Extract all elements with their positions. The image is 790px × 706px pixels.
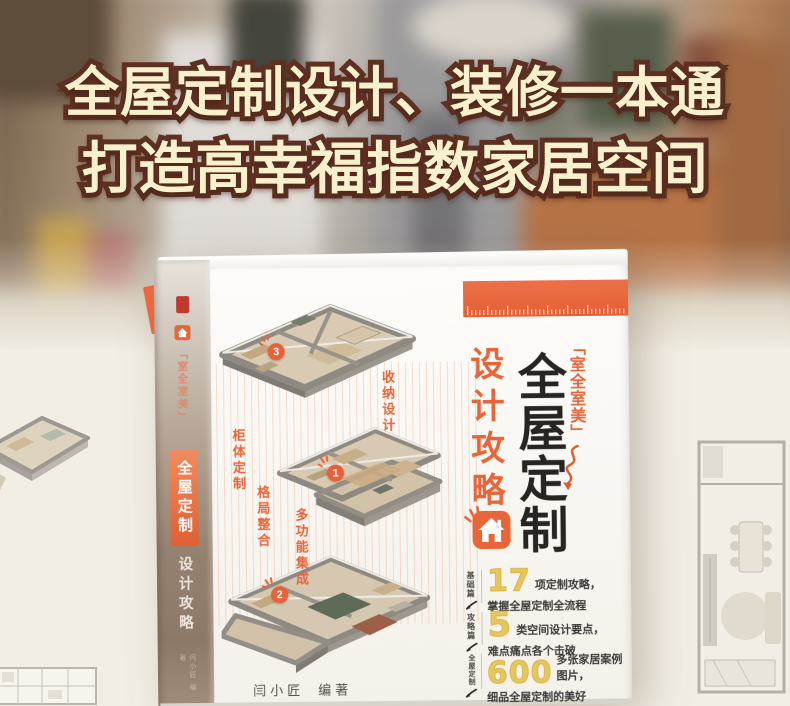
marker-number: 3 <box>273 346 279 358</box>
spine-title-block: 全屋定制 <box>170 450 199 546</box>
background-floorplan-bottom-left <box>0 664 100 706</box>
headline-line2: 打造高幸福指数家居空间 <box>0 142 790 198</box>
cover-top-band <box>463 279 628 317</box>
background-floorplan-left <box>0 402 92 508</box>
cover-subtitle: 设计攻略 <box>460 346 511 517</box>
spine-subtitle: 设计攻略 <box>174 556 196 654</box>
feature-text: 项定制攻略， <box>535 575 601 594</box>
brush-arrow-icon <box>465 688 477 698</box>
plan-marker-3: 3 <box>268 343 285 360</box>
brush-arrow-icon <box>465 642 477 652</box>
marker-number: 2 <box>277 589 283 601</box>
book-front-cover: 收纳设计 柜体定制 格局整合 多功能集成 3 1 2 <box>210 264 633 706</box>
headline: 全屋定制设计、装修一本通 打造高幸福指数家居空间 <box>0 66 790 198</box>
feature-number: 5 <box>487 611 512 640</box>
spine-author: 闫小匠 编著 <box>176 654 196 698</box>
house-logo-icon-spine <box>174 325 190 340</box>
author-name: 闫小匠 <box>253 680 304 700</box>
book-spine: 「室全室美」 全屋定制 设计攻略 闫小匠 编著 <box>154 260 215 706</box>
marker-number: 1 <box>332 467 338 479</box>
cover-author: 闫小匠 编著 <box>253 679 352 699</box>
house-logo-icon <box>461 503 513 550</box>
cover-title: 全屋定制 <box>503 351 576 557</box>
plan-label-cabinet-custom: 柜体定制 <box>228 428 248 492</box>
feature-row-3: 全屋定制 600 多张家居案例图片， 细品全屋定制的美好 <box>465 650 633 705</box>
feature-tag: 全屋定制 <box>466 654 476 686</box>
spark-icon <box>258 334 270 346</box>
spine-series: 「室全室美」 <box>175 348 191 440</box>
author-role: 编著 <box>318 679 352 698</box>
background-floorplan-right <box>693 434 790 706</box>
plan-label-storage-design: 收纳设计 <box>378 370 398 434</box>
spark-icon <box>262 577 274 589</box>
book: 「室全室美」 全屋定制 设计攻略 闫小匠 编著 <box>144 250 635 706</box>
plan-label-layout-integration: 格局整合 <box>253 485 273 549</box>
product-image[interactable]: 全屋定制设计、装修一本通 打造高幸福指数家居空间 「室全室美」 全屋定制 设计攻… <box>0 0 790 706</box>
feature-text2: 细品全屋定制的美好 <box>487 687 632 705</box>
spine-title: 全屋定制 <box>173 460 195 536</box>
headline-line1: 全屋定制设计、装修一本通 <box>0 66 790 120</box>
brush-arrow-icon <box>465 600 477 610</box>
floorplan-illustration-3 <box>221 550 438 686</box>
feature-number: 17 <box>487 569 531 595</box>
feature-number: 600 <box>487 660 553 686</box>
feature-text: 类空间设计要点， <box>516 621 604 640</box>
spark-icon <box>318 456 330 468</box>
feature-row-1: 基础篇 17 项定制攻略， 掌握全屋定制全流程 <box>464 568 601 614</box>
plan-marker-1: 1 <box>327 464 344 481</box>
plan-label-multifunction: 多功能集成 <box>291 508 311 588</box>
ruler-ticks-decoration <box>467 305 624 316</box>
plan-marker-2: 2 <box>271 586 288 603</box>
feature-text: 多张家居案例图片， <box>556 650 632 685</box>
publisher-seal <box>176 296 189 313</box>
feature-tag: 基础篇 <box>465 571 476 598</box>
feature-tag: 攻略篇 <box>465 613 476 640</box>
